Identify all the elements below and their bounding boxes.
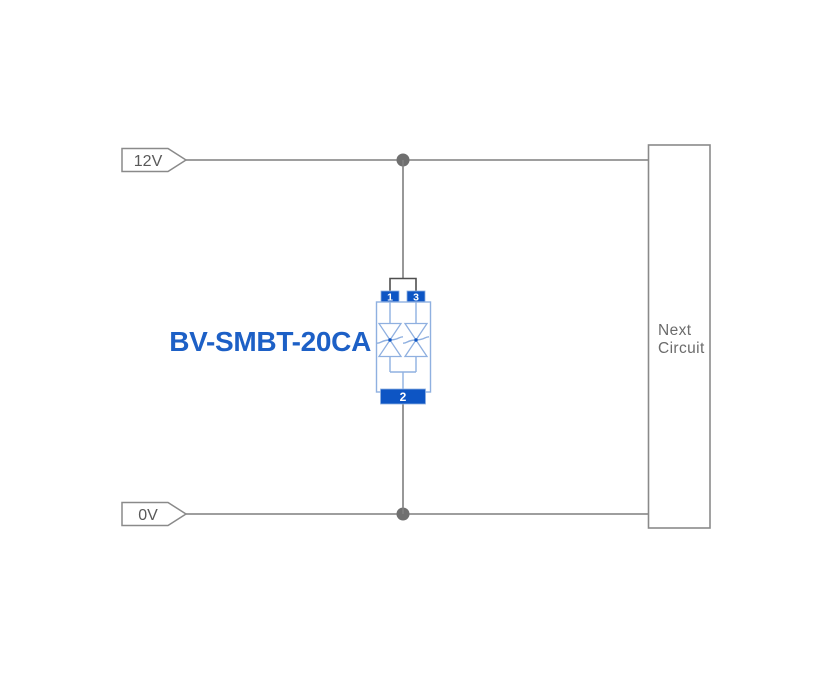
next-circuit-text-line1: Next [658, 322, 692, 339]
pad-pin2-label: 2 [400, 390, 407, 404]
diode-triangle-up [405, 340, 427, 357]
diode-triangle-down [405, 324, 427, 341]
next-circuit-text-line2: Circuit [658, 340, 705, 357]
diode-triangle-down [379, 324, 401, 341]
net-label-0v-text: 0V [138, 507, 158, 524]
tvs-component: 1 3 [377, 279, 431, 405]
diode-node-dot [414, 338, 417, 341]
bidirectional-tvs-diode-icon [403, 324, 429, 357]
next-circuit-block: Next Circuit [649, 145, 711, 528]
bidirectional-tvs-diode-icon [377, 324, 403, 357]
diode-node-dot [388, 338, 391, 341]
diode-triangle-up [379, 340, 401, 357]
circuit-diagram-canvas: 12V 0V 1 3 [0, 0, 832, 675]
circuit-diagram: 12V 0V 1 3 [0, 0, 832, 675]
net-label-0v: 0V [122, 503, 186, 526]
net-label-12v: 12V [122, 149, 186, 172]
component-name-label: BV-SMBT-20CA [169, 326, 371, 357]
pin-split-connector [390, 279, 416, 293]
net-label-12v-text: 12V [134, 153, 163, 170]
